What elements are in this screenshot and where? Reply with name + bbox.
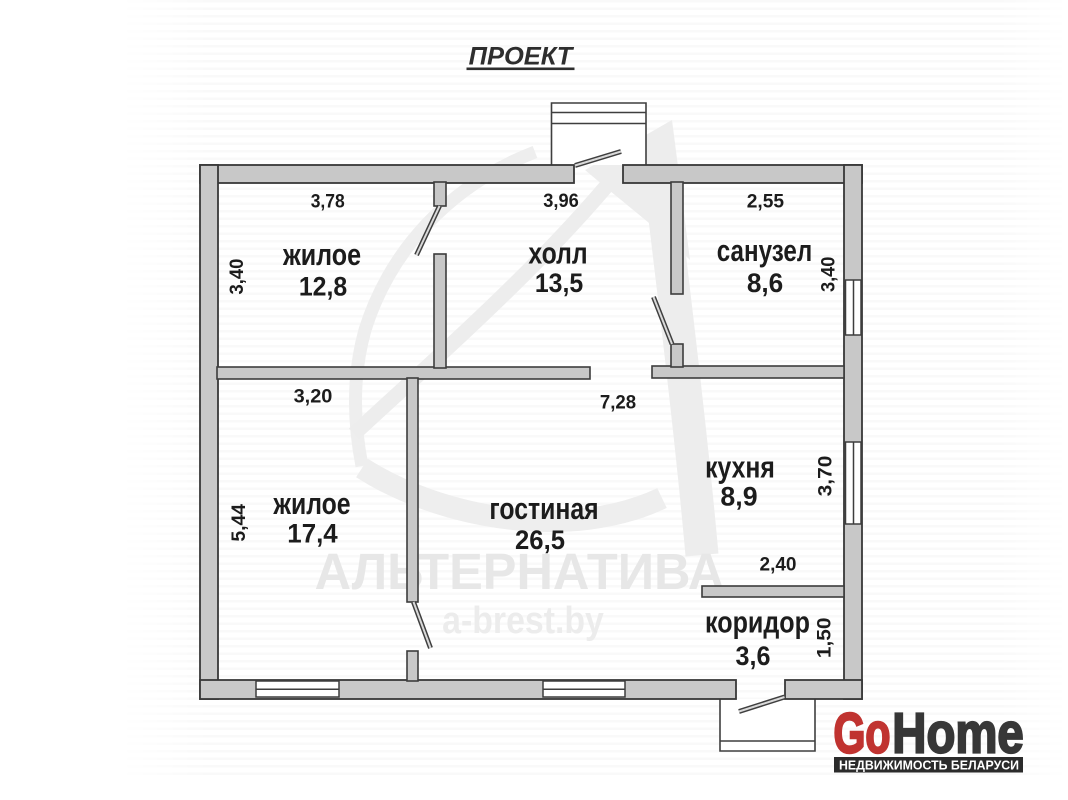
svg-text:7,28: 7,28 bbox=[600, 391, 636, 412]
svg-text:3,70: 3,70 bbox=[816, 456, 837, 497]
svg-text:3,96: 3,96 bbox=[543, 190, 578, 211]
svg-text:3,78: 3,78 bbox=[311, 190, 345, 212]
svg-text:санузел: санузел bbox=[717, 233, 812, 268]
svg-text:8,9: 8,9 bbox=[720, 482, 757, 512]
svg-text:ПРОЕКТ: ПРОЕКТ bbox=[469, 43, 575, 71]
svg-text:a-brest.by: a-brest.by bbox=[442, 598, 604, 641]
svg-text:холл: холл bbox=[528, 236, 587, 270]
svg-text:жилое: жилое bbox=[273, 486, 351, 520]
svg-text:13,5: 13,5 bbox=[535, 269, 583, 298]
svg-text:3,40: 3,40 bbox=[226, 259, 247, 295]
svg-text:3,20: 3,20 bbox=[294, 386, 333, 407]
svg-text:12,8: 12,8 bbox=[299, 273, 347, 302]
svg-text:26,5: 26,5 bbox=[515, 524, 565, 555]
svg-text:кухня: кухня bbox=[705, 450, 775, 484]
svg-text:Home: Home bbox=[892, 702, 1023, 765]
svg-text:жилое: жилое bbox=[282, 236, 361, 271]
svg-text:коридор: коридор bbox=[705, 604, 810, 639]
svg-text:17,4: 17,4 bbox=[287, 518, 338, 549]
svg-text:2,40: 2,40 bbox=[760, 555, 797, 576]
svg-text:2,55: 2,55 bbox=[747, 192, 785, 213]
svg-text:гостиная: гостиная bbox=[489, 491, 598, 525]
svg-text:Go: Go bbox=[834, 701, 891, 765]
svg-text:8,6: 8,6 bbox=[747, 267, 783, 297]
svg-text:1,50: 1,50 bbox=[815, 617, 836, 658]
svg-text:НЕДВИЖИМОСТЬ БЕЛАРУСИ: НЕДВИЖИМОСТЬ БЕЛАРУСИ bbox=[839, 759, 1019, 773]
svg-text:3,6: 3,6 bbox=[736, 640, 771, 671]
svg-text:3,40: 3,40 bbox=[817, 257, 838, 292]
svg-text:5,44: 5,44 bbox=[229, 504, 250, 542]
